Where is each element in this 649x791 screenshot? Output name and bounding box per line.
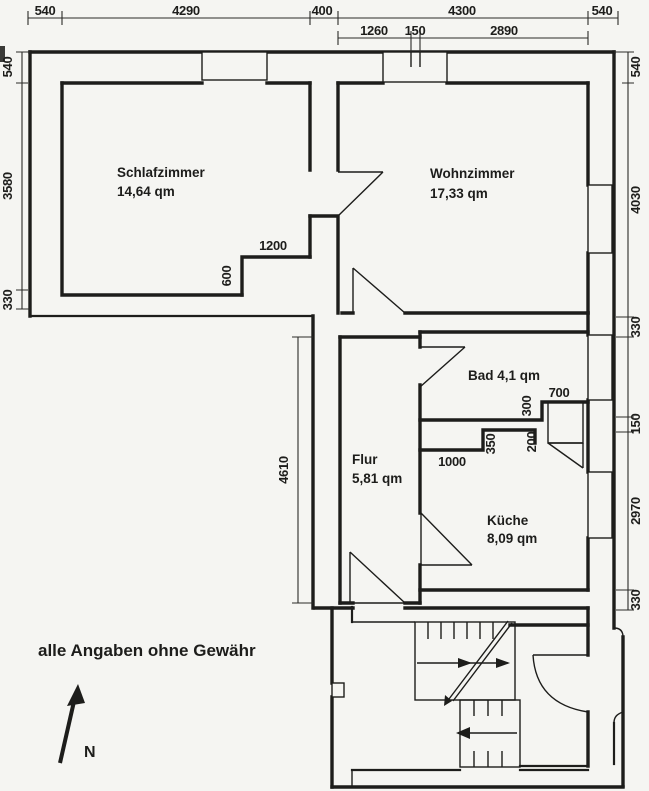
wohnzimmer-right-window-icon — [588, 185, 612, 253]
wohnzimmer-name: Wohnzimmer — [430, 166, 515, 181]
door-stairwell-icon — [533, 655, 588, 712]
dim-right-150: 150 — [628, 414, 643, 435]
schlafzimmer-window-icon — [202, 52, 267, 80]
staircase — [352, 621, 520, 787]
flur-name: Flur — [352, 452, 378, 467]
stair-arrow-right2-icon — [496, 658, 510, 668]
room-labels: Schlafzimmer 14,64 qm Wohnzimmer 17,33 q… — [117, 165, 540, 546]
dim-kueche-350: 350 — [483, 434, 498, 455]
schlafzimmer-niche-walls — [242, 257, 310, 295]
door-bad-icon — [420, 347, 465, 387]
flur-walls — [340, 337, 420, 603]
flur-area: 5,81 qm — [352, 471, 402, 486]
dim-flur-4610: 4610 — [276, 456, 291, 484]
bad-label: Bad 4,1 qm — [468, 368, 540, 383]
storage-niche — [548, 403, 583, 443]
dim-top-540-right: 540 — [592, 3, 613, 18]
kueche-area: 8,09 qm — [487, 531, 537, 546]
dim-kueche-200: 200 — [524, 432, 539, 453]
dim-chain-flur — [292, 337, 313, 603]
north-arrow-shaft — [60, 697, 75, 763]
north-arrow-head-icon — [67, 684, 85, 706]
dim-niche-600: 600 — [219, 266, 234, 287]
door-apartment-entrance-icon — [350, 552, 405, 603]
dim-top2-2890: 2890 — [490, 23, 518, 38]
floor-plan-drawing: 540 4290 400 4300 540 1260 150 2890 540 … — [0, 0, 649, 791]
wall-notch — [332, 683, 344, 697]
schlafzimmer-area: 14,64 qm — [117, 184, 175, 199]
dim-chain-left — [16, 52, 30, 309]
dim-left-330: 330 — [0, 290, 15, 311]
dim-right-2970: 2970 — [628, 497, 643, 525]
dim-kueche-1000: 1000 — [438, 454, 466, 469]
schlafzimmer-name: Schlafzimmer — [117, 165, 206, 180]
dim-left-540: 540 — [0, 57, 15, 78]
dimension-lines — [16, 11, 634, 610]
stair-steps-lower-bottom — [474, 751, 502, 767]
stair-steps-upper — [428, 622, 493, 639]
dimension-labels: 540 4290 400 4300 540 1260 150 2890 540 … — [0, 3, 643, 610]
dim-right-540: 540 — [628, 57, 643, 78]
door-schlafzimmer-wohnzimmer-icon — [338, 172, 383, 216]
disclaimer-text: alle Angaben ohne Gewähr — [38, 641, 256, 660]
dim-right-4030: 4030 — [628, 186, 643, 214]
north-arrow: N — [60, 684, 96, 763]
stairwell-walls — [315, 607, 588, 770]
dim-right-330b: 330 — [628, 590, 643, 611]
door-kueche-icon — [421, 513, 472, 565]
wohnzimmer-wall-left — [310, 83, 338, 313]
wohnzimmer-area: 17,33 qm — [430, 186, 488, 201]
windows — [202, 52, 612, 538]
schlafzimmer-walls — [62, 83, 310, 295]
stair-arrow-left-icon — [456, 727, 470, 739]
dim-top2-150: 150 — [405, 23, 426, 38]
dim-top-4300: 4300 — [448, 3, 476, 18]
north-label: N — [84, 744, 96, 761]
dim-bad-300: 300 — [519, 396, 534, 417]
dim-top-540-left: 540 — [35, 3, 56, 18]
dim-niche-1200: 1200 — [259, 238, 287, 253]
dim-top-400: 400 — [312, 3, 333, 18]
floorplan-page: 540 4290 400 4300 540 1260 150 2890 540 … — [0, 0, 649, 791]
door-niche-icon — [548, 443, 583, 468]
door-flur-wohnzimmer-icon — [353, 268, 405, 313]
kueche-window-icon — [588, 472, 612, 538]
dim-top-4290: 4290 — [172, 3, 200, 18]
stair-steps-lower-top — [474, 700, 502, 716]
stair-arrow-right-icon — [458, 658, 472, 668]
bad-window-icon — [588, 335, 612, 400]
dim-bad-700: 700 — [549, 385, 570, 400]
dim-left-3580: 3580 — [0, 172, 15, 200]
wohnzimmer-top-window-icon — [383, 52, 447, 82]
dim-top2-1260: 1260 — [360, 23, 388, 38]
kueche-wall-top — [420, 430, 535, 450]
kueche-name: Küche — [487, 513, 529, 528]
dim-right-330a: 330 — [628, 317, 643, 338]
